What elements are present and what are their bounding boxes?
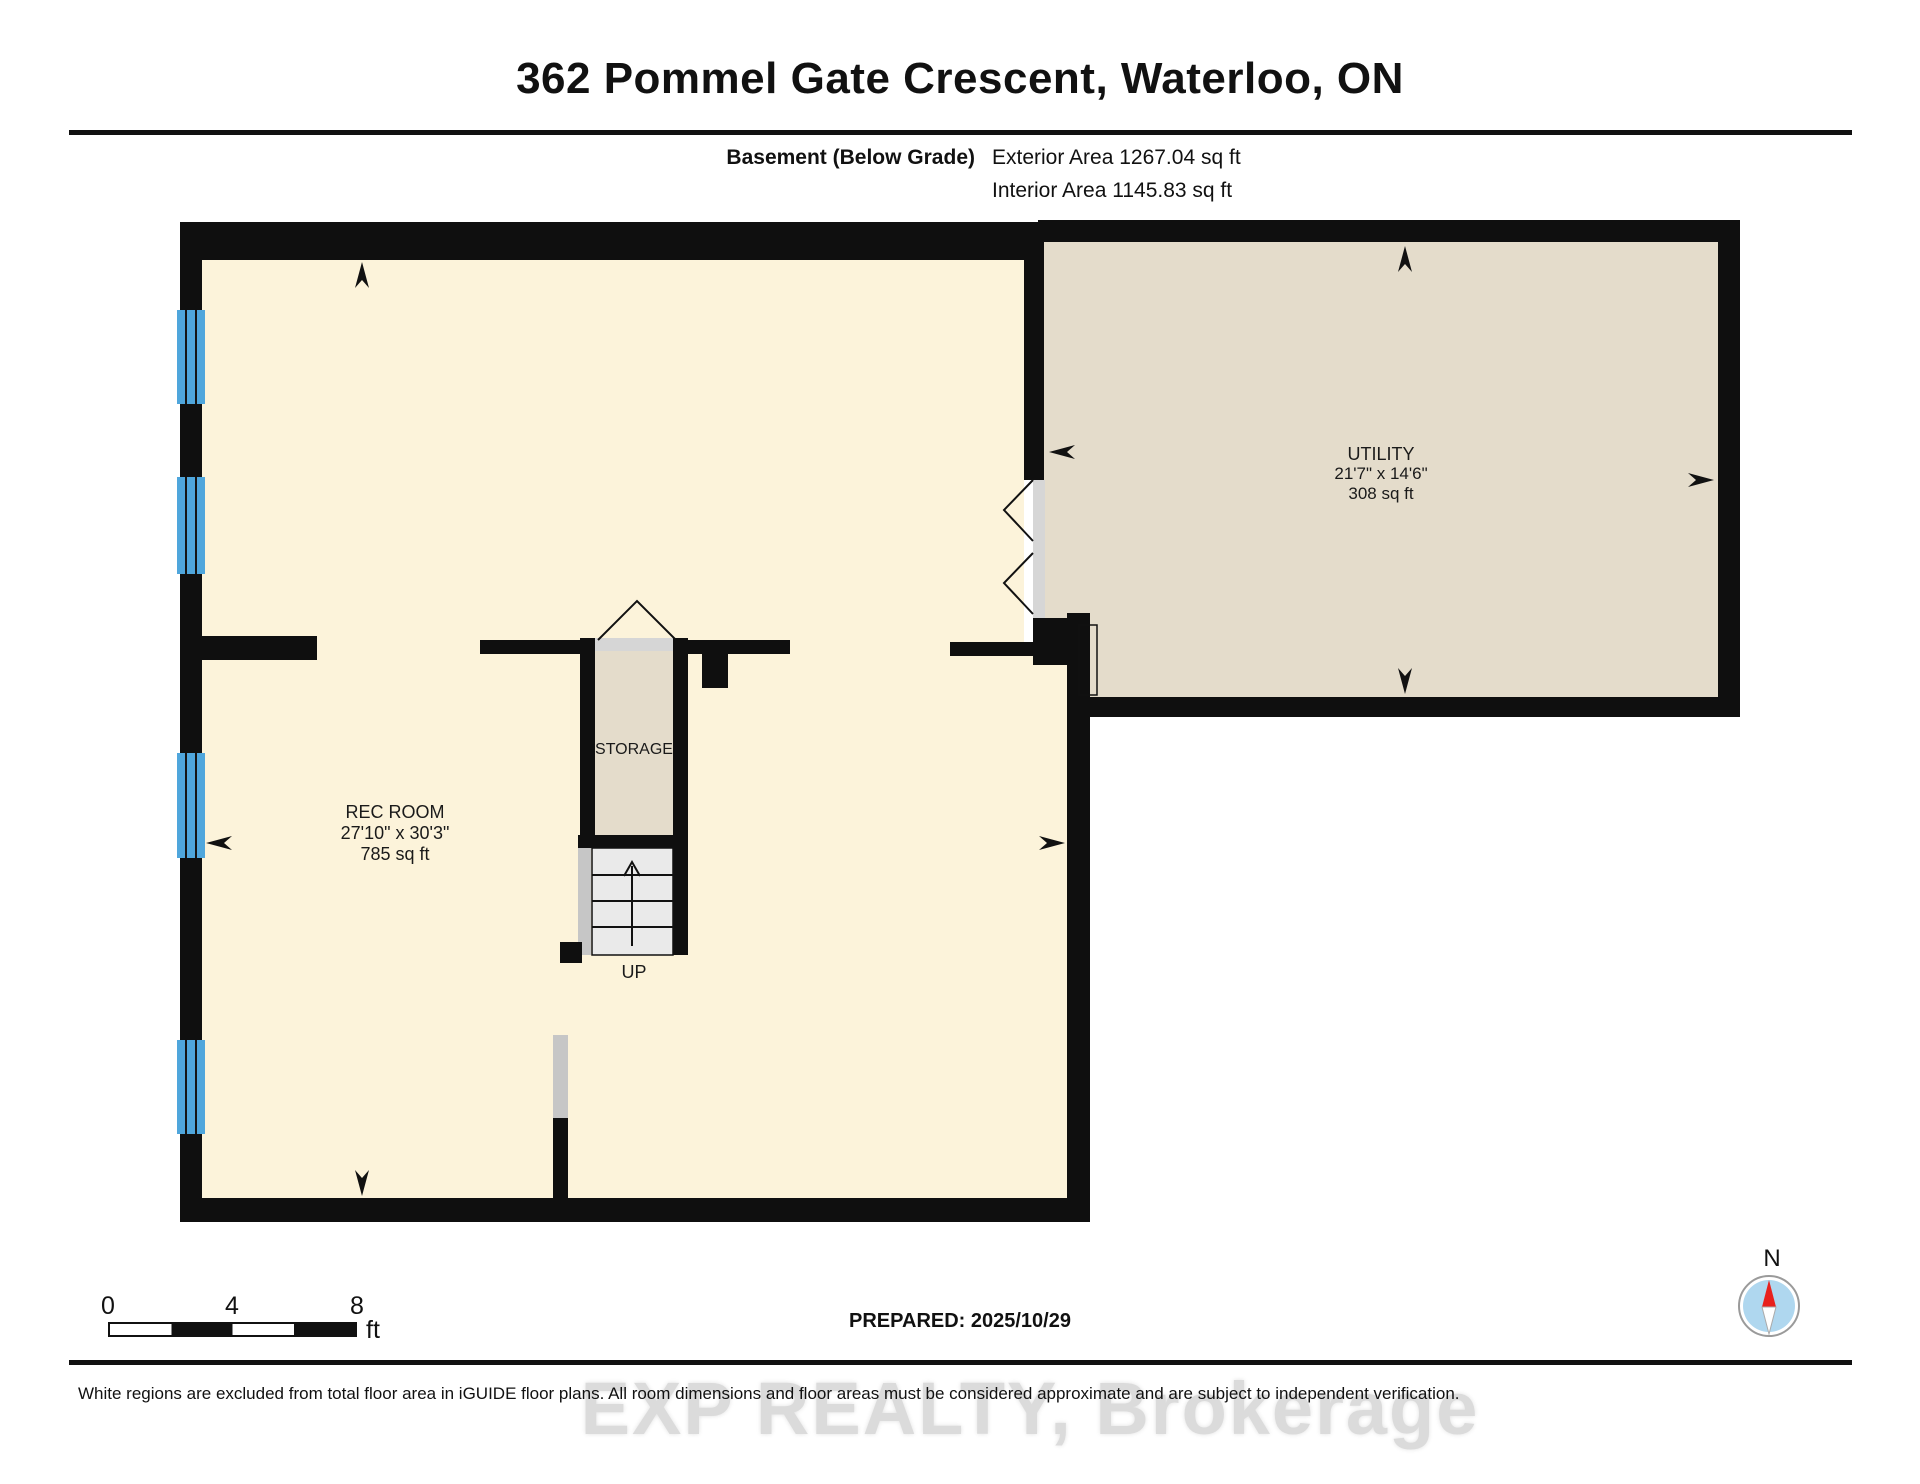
wall xyxy=(1718,220,1740,717)
rec-room-floor-upper xyxy=(202,260,1024,660)
window-icon xyxy=(177,310,205,404)
wall xyxy=(1038,220,1740,242)
prepared-date: PREPARED: 2025/10/29 xyxy=(0,1310,1920,1333)
window-icon xyxy=(177,1040,205,1134)
wall xyxy=(480,640,595,654)
wall xyxy=(950,642,1035,656)
compass-icon xyxy=(1737,1274,1801,1338)
stairs-up-label: UP xyxy=(599,962,669,983)
watermark: EXP REALTY, Brokerage xyxy=(140,1366,1920,1451)
wall xyxy=(180,222,1044,260)
floor-plan: REC ROOM 27'10" x 30'3" 785 sq ft UTILIT… xyxy=(0,0,1920,1484)
wall xyxy=(1024,222,1044,480)
wall xyxy=(702,652,728,688)
compass-north-label: N xyxy=(1747,1245,1797,1273)
wall xyxy=(553,1118,568,1198)
room-area: 308 sq ft xyxy=(1256,484,1506,504)
window-icon xyxy=(177,477,205,574)
footer-divider xyxy=(69,1360,1852,1365)
storage-door-sill xyxy=(595,638,673,651)
storage-room-label: STORAGE xyxy=(584,739,684,760)
wall xyxy=(673,638,688,955)
window-icon xyxy=(177,753,205,858)
wall xyxy=(1067,613,1090,1222)
wall xyxy=(202,636,317,660)
room-dimensions: 21'7" x 14'6" xyxy=(1256,464,1506,484)
room-dimensions: 27'10" x 30'3" xyxy=(270,823,520,844)
room-area: 785 sq ft xyxy=(270,844,520,865)
utility-room-label: UTILITY 21'7" x 14'6" 308 sq ft xyxy=(1256,444,1506,504)
wall xyxy=(180,1198,1090,1222)
disclaimer-text: White regions are excluded from total fl… xyxy=(78,1384,1778,1404)
wall xyxy=(578,835,688,848)
wall xyxy=(1090,697,1740,717)
wall xyxy=(1033,618,1067,665)
lower-partition-gray xyxy=(553,1035,568,1118)
bifold-door-jamb xyxy=(1033,480,1045,618)
room-name: UTILITY xyxy=(1256,444,1506,464)
rec-room-label: REC ROOM 27'10" x 30'3" 785 sq ft xyxy=(270,802,520,865)
stair-side-wall xyxy=(578,848,591,955)
room-name: REC ROOM xyxy=(270,802,520,823)
wall xyxy=(560,942,582,963)
